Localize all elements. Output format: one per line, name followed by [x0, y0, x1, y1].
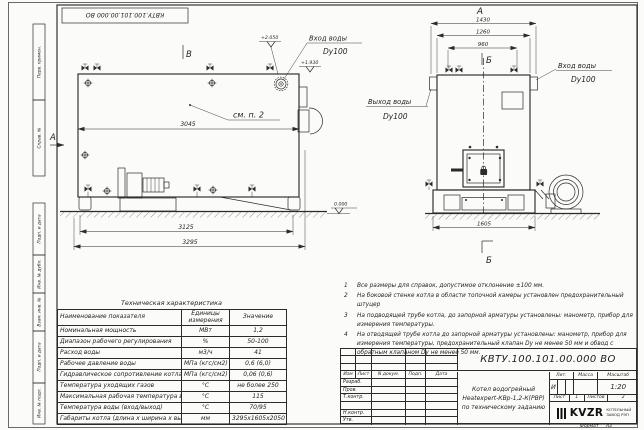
- base-frame: [433, 190, 535, 213]
- mass-value: [574, 380, 599, 394]
- spec-row: Гидравлическое сопротивление котлаМПа (к…: [58, 370, 287, 381]
- kvzr-logo-icon: [557, 408, 567, 419]
- lifting-lug-icon: [209, 186, 218, 195]
- spec-row: Габариты котла (длина х ширина х высота)…: [58, 414, 287, 425]
- spec-row: Температура воды (вход/выход)°С70/95: [58, 403, 287, 414]
- valve-icon: [85, 185, 92, 197]
- lit-value: И: [550, 380, 558, 394]
- drawing-sheet: Перв. примен. Справ. № Подп. и дата Инв.…: [0, 0, 644, 430]
- lifting-lug-icon: [208, 79, 217, 88]
- burner-motor: [118, 168, 176, 211]
- product-description: Котел водогрейный Heatexpert-КВр-1,2-К(Р…: [457, 372, 549, 425]
- valve-icon: [511, 66, 518, 73]
- svg-text:+2.050: +2.050: [261, 35, 278, 41]
- dim-3295: 3295: [182, 239, 197, 246]
- valve-icon: [267, 64, 274, 71]
- spec-row: Номинальная мощностьМВт1,2: [58, 326, 287, 337]
- doc-number: КВТУ.100.101.00.000 ВО: [457, 349, 638, 371]
- dim-960: 960: [478, 42, 489, 48]
- view-arrow-a-label: А: [49, 133, 56, 143]
- boiler-side-view: В А см. п. 2 Вход воды Dy100 +2.050 +1.9…: [49, 35, 362, 251]
- water-inlet-flange-icon: [274, 77, 288, 91]
- spec-row: Диапазон рабочего регулирования%50-100: [58, 337, 287, 348]
- inlet-callout-title: Вход воды: [309, 35, 348, 43]
- valve-icon: [537, 180, 544, 187]
- outlet-callout-dn: Dy100: [383, 112, 408, 121]
- dim-1260: 1260: [476, 30, 490, 36]
- inlet-callout-title: Вход воды: [558, 62, 597, 70]
- note-item: 3На подводящей трубе котла, до запорной …: [344, 312, 636, 330]
- sidebar-label: Подп. и дата: [37, 214, 43, 244]
- revision-grid: [341, 349, 457, 371]
- spec-col-value: Значение: [230, 310, 287, 326]
- svg-text:0.000: 0.000: [334, 202, 347, 208]
- spec-col-units: Единицы измерения: [182, 310, 230, 326]
- signature-rows: Разраб. Пров. Т.контр. Н.контр. Утв.: [341, 379, 457, 425]
- spec-row: Температура уходящих газов°Сне более 250: [58, 381, 287, 392]
- valve-icon: [446, 66, 453, 73]
- inlet-callout-dn: Dy100: [571, 75, 596, 84]
- note-item: 1Все размеры для справок, допустимое отк…: [344, 282, 636, 291]
- blower-fan: [546, 175, 583, 214]
- inlet-callout-dn: Dy100: [323, 47, 348, 56]
- spec-table: Техническая характеристика Наименование …: [57, 297, 286, 425]
- spec-row: Максимальная рабочая температура воды°С1…: [58, 392, 287, 403]
- top-stamp-doc-number: КВТУ.100.101.00.000 ВО: [86, 11, 165, 18]
- revision-header: Изм Лист N докум. Подп. Дата: [341, 371, 457, 379]
- spec-header-row: Наименование показателя Единицы измерени…: [58, 310, 287, 326]
- dim-1430: 1430: [476, 18, 490, 24]
- valve-icon: [82, 64, 89, 71]
- sidebar-label: Справ. №: [37, 127, 43, 148]
- see-note-callout: см. п. 2: [233, 111, 264, 120]
- sidebar-label: Инв. № подл.: [37, 388, 43, 418]
- outlet-callout-title: Выход воды: [368, 98, 412, 106]
- sidebar-label: Перв. примен.: [37, 46, 43, 78]
- note-item: 2На боковой стенке котла в области топоч…: [344, 292, 636, 310]
- section-mark-b-bottom: Б: [486, 256, 492, 266]
- furnace-door: [451, 146, 504, 187]
- title-block: КВТУ.100.101.00.000 ВО Изм Лист N докум.…: [340, 348, 637, 424]
- valve-icon: [194, 185, 201, 197]
- valve-icon: [94, 64, 101, 71]
- valve-icon: [426, 180, 433, 190]
- valve-icon: [456, 66, 463, 73]
- spec-row: Рабочее давление водыМПа (кгс/см2)0,6 (6…: [58, 359, 287, 370]
- sidebar-label: Подп. и дата: [37, 342, 43, 372]
- valve-icon: [207, 64, 214, 71]
- spec-table-title: Техническая характеристика: [57, 297, 286, 309]
- spec-row: Расход водым3/ч41: [58, 348, 287, 359]
- sidebar-label: Взам. инв. №: [37, 297, 43, 327]
- lifting-lug-icon: [81, 151, 90, 160]
- spec-col-name: Наименование показателя: [58, 310, 182, 326]
- sight-window: [502, 92, 523, 109]
- dim-3125: 3125: [178, 224, 193, 231]
- sidebar-label: Инв. № дубл.: [37, 259, 43, 288]
- svg-text:+1.930: +1.930: [301, 60, 318, 66]
- dim-3045: 3045: [180, 121, 195, 128]
- valve-icon: [249, 185, 256, 197]
- section-mark-v: В: [186, 50, 192, 60]
- format-strip: Формат А3: [556, 424, 636, 429]
- elevation-mark-zero: 0.000: [327, 202, 357, 214]
- title-block-right: Лит. Масса Масштаб И 1:20 Лист 1 Листов …: [549, 372, 638, 425]
- lifting-lug-icon: [84, 79, 93, 88]
- elevation-mark: +2.050: [259, 35, 281, 74]
- scale-value: 1:20: [598, 380, 638, 394]
- boiler-front-view: А 1430 1260 960 Б: [366, 7, 612, 266]
- lifting-lug-icon: [103, 187, 112, 196]
- section-mark-b-top: Б: [486, 56, 492, 66]
- view-a-label: А: [476, 7, 483, 17]
- elevation-mark: +1.930: [299, 60, 321, 72]
- dim-1605: 1605: [477, 222, 491, 228]
- company-logo: KVZR КОТЕЛЬНЫЙЗАВОД РЭП: [550, 402, 638, 424]
